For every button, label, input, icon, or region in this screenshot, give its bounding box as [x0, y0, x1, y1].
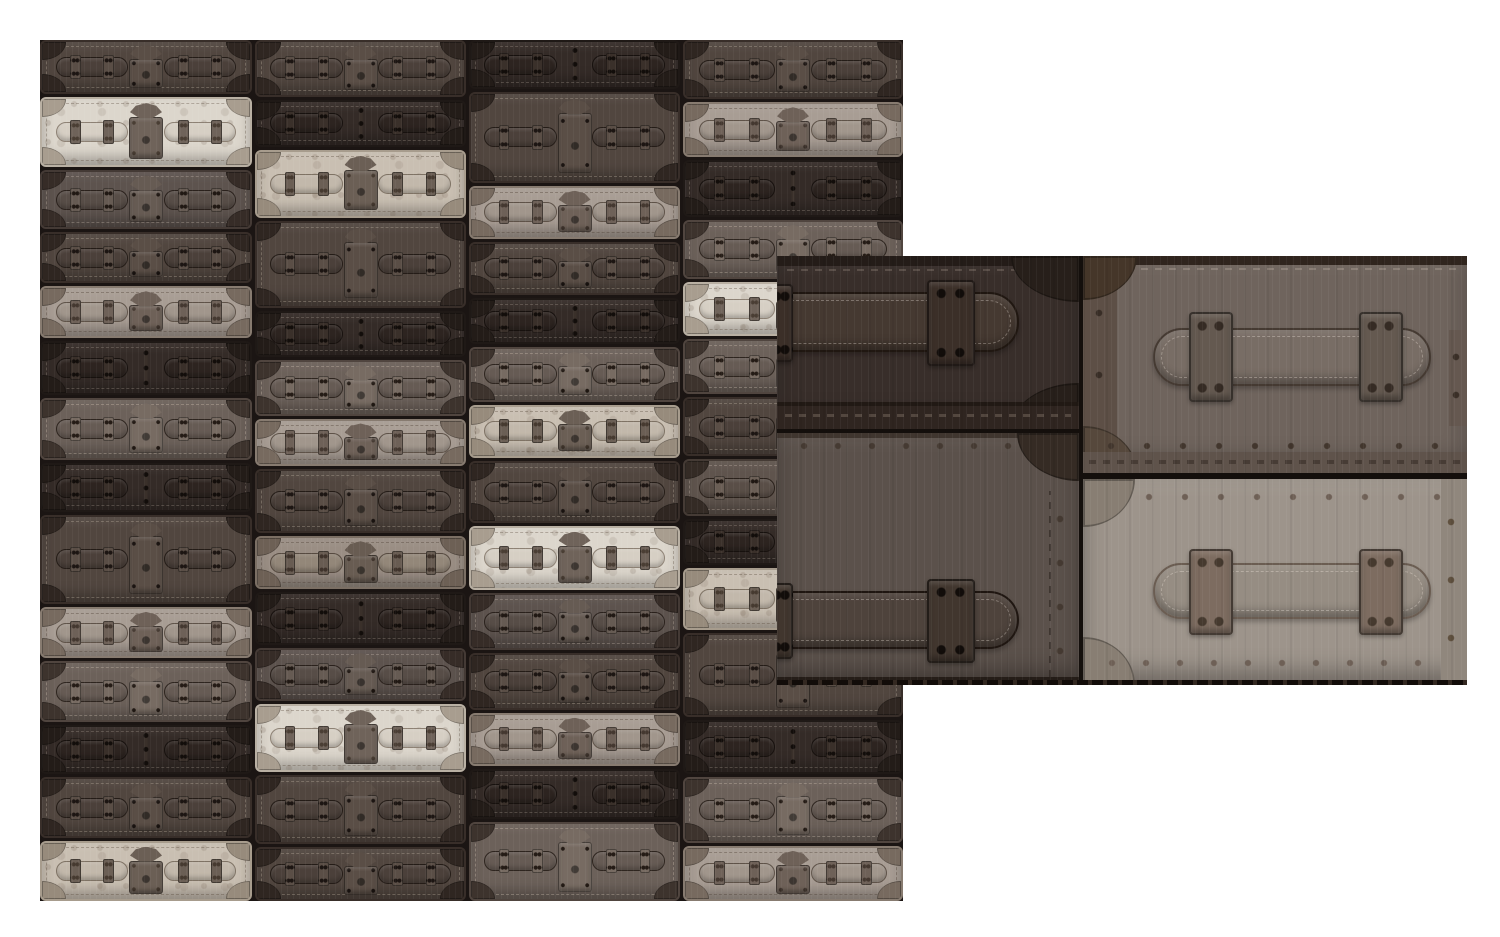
strap-keeper — [749, 237, 760, 261]
strap-keeper — [499, 362, 510, 386]
lock-finial — [777, 851, 809, 866]
strap-keeper — [499, 125, 510, 149]
handle-icon — [378, 58, 450, 78]
handle-icon — [484, 548, 556, 568]
handle-icon — [270, 58, 342, 78]
corner-cap — [257, 152, 281, 170]
strap-keeper — [532, 480, 543, 504]
handle-icon — [56, 57, 129, 77]
strap-keeper — [392, 56, 403, 80]
strap-keeper — [426, 252, 437, 276]
handle-icon — [484, 202, 556, 222]
handle-icon — [270, 254, 342, 274]
strap-keeper — [211, 356, 222, 380]
corner-cap — [440, 513, 464, 531]
strap-keeper — [861, 58, 872, 82]
strap-keeper — [426, 172, 437, 196]
corner-cap — [42, 400, 66, 418]
trunk-bottom-left — [777, 433, 1079, 685]
strap-keeper — [606, 480, 617, 504]
corner-cap — [471, 528, 495, 546]
lock-plate — [344, 866, 378, 894]
strap-keeper — [426, 111, 437, 135]
corner-cap — [257, 752, 281, 770]
handle-icon — [484, 851, 556, 871]
suitcase — [40, 398, 252, 461]
strap-keeper — [714, 587, 725, 611]
strap-keeper — [532, 362, 543, 386]
handle-icon — [270, 800, 342, 820]
corner-cap — [685, 635, 709, 653]
lock-plate — [129, 417, 163, 453]
suitcase — [40, 515, 252, 604]
strap-keeper — [749, 663, 760, 687]
strap-keeper — [70, 476, 81, 500]
strap-keeper — [499, 669, 510, 693]
handle-icon — [484, 127, 556, 147]
strap-keeper — [714, 355, 725, 379]
handle-icon — [378, 800, 450, 820]
handle-icon — [484, 612, 556, 632]
strap-keeper — [714, 118, 725, 142]
handle-icon — [592, 784, 664, 804]
lock-finial — [559, 352, 591, 367]
handle-icon — [270, 324, 342, 344]
corner-cap — [42, 517, 66, 535]
strap-keeper — [318, 376, 329, 400]
strap-keeper — [640, 362, 651, 386]
suitcase — [683, 846, 903, 901]
handle-icon — [699, 737, 775, 757]
corner-cap — [685, 436, 709, 454]
strap-keeper — [70, 680, 81, 704]
strap-keeper — [318, 862, 329, 886]
handle-icon — [484, 364, 556, 384]
handle-icon — [56, 861, 129, 881]
corner-cap — [257, 288, 281, 306]
strap-keeper — [70, 859, 81, 883]
suitcase — [469, 40, 680, 89]
corner-cap — [1017, 433, 1079, 481]
leather-band — [1083, 256, 1467, 265]
corner-cap — [685, 222, 709, 240]
strap-keeper — [392, 798, 403, 822]
suitcase — [40, 607, 252, 658]
strap-keeper — [640, 849, 651, 873]
lock-icon — [552, 466, 598, 516]
handle-icon — [164, 190, 237, 210]
handle-icon — [592, 729, 664, 749]
lock-finial — [345, 228, 377, 243]
strap-keeper — [70, 55, 81, 79]
strap-keeper — [318, 489, 329, 513]
strap-keeper — [392, 862, 403, 886]
strap-keeper — [211, 120, 222, 144]
corner-cap — [226, 818, 250, 836]
suitcase — [469, 242, 680, 295]
strap-keeper — [318, 111, 329, 135]
center-strap-icon — [356, 319, 365, 350]
suitcase — [255, 40, 466, 97]
strap-keeper — [426, 489, 437, 513]
lock-finial — [559, 191, 591, 206]
lock-finial — [345, 45, 377, 60]
lock-finial — [130, 667, 162, 682]
strap-keeper — [211, 621, 222, 645]
strap-keeper — [178, 547, 189, 571]
handle-icon — [56, 419, 129, 439]
strap-keeper — [318, 726, 329, 750]
strap-keeper — [178, 188, 189, 212]
strap-keeper — [606, 669, 617, 693]
stitch-line — [785, 414, 1071, 417]
strap-keeper — [714, 663, 725, 687]
lock-icon — [338, 653, 384, 695]
strap-keeper — [640, 610, 651, 634]
suitcase — [255, 775, 466, 844]
corner-cap — [440, 706, 464, 724]
handle-icon — [56, 478, 129, 498]
corner-cap — [440, 396, 464, 414]
lock-plate — [776, 865, 810, 895]
lock-plate — [129, 251, 163, 277]
strap-keeper — [211, 417, 222, 441]
lock-plate — [558, 205, 592, 233]
handle-icon — [699, 589, 775, 609]
handle-icon — [56, 190, 129, 210]
strap-keeper — [285, 798, 296, 822]
handle-icon — [484, 311, 556, 331]
lock-icon — [552, 658, 598, 703]
strap-keeper — [318, 430, 329, 454]
corner-cap — [654, 528, 678, 546]
corner-cap — [685, 316, 709, 334]
strap-keeper — [285, 111, 296, 135]
handle-icon — [56, 623, 129, 643]
handle-icon — [378, 553, 450, 573]
strap-keeper — [318, 551, 329, 575]
strap-keeper — [499, 419, 510, 443]
strap-keeper — [178, 120, 189, 144]
strap-keeper — [1189, 549, 1233, 635]
lock-plate — [344, 379, 378, 409]
lock-finial — [559, 598, 591, 613]
strap-keeper — [1359, 549, 1403, 635]
strap-keeper — [426, 798, 437, 822]
strap-keeper — [532, 546, 543, 570]
lock-icon — [123, 403, 169, 453]
corner-cap — [42, 172, 66, 190]
handle-icon — [592, 202, 664, 222]
lock-plate — [344, 242, 378, 298]
strap-keeper — [318, 172, 329, 196]
corner-cap — [685, 779, 709, 797]
handle-icon — [699, 60, 775, 80]
lock-icon — [123, 45, 169, 88]
strap-keeper — [499, 256, 510, 280]
strap-keeper — [178, 476, 189, 500]
corner-cap — [685, 570, 709, 588]
suitcase — [255, 311, 466, 357]
strap-keeper — [826, 118, 837, 142]
strap-keeper — [70, 120, 81, 144]
corner-cap — [440, 198, 464, 216]
center-strap-icon — [789, 729, 798, 764]
lock-icon — [338, 45, 384, 90]
corner-cap — [257, 223, 281, 241]
corner-cap — [685, 823, 709, 841]
corner-cap — [226, 663, 250, 681]
corner-cap — [471, 94, 495, 112]
pattern-column — [469, 40, 680, 901]
strap-keeper — [426, 726, 437, 750]
strap-keeper — [211, 55, 222, 79]
handle-icon — [592, 55, 664, 75]
strap-keeper — [211, 859, 222, 883]
lock-icon — [552, 828, 598, 892]
lock-plate — [558, 366, 592, 395]
handle-icon — [699, 417, 775, 437]
lock-plate — [558, 546, 592, 583]
strap-keeper — [426, 430, 437, 454]
suitcase — [40, 97, 252, 167]
handle-icon — [270, 728, 342, 748]
corner-cap — [877, 162, 901, 180]
handle-icon — [592, 311, 664, 331]
lock-plate — [129, 861, 163, 894]
strap-keeper — [178, 796, 189, 820]
strap-keeper — [861, 176, 872, 200]
rivet-row — [1095, 659, 1441, 667]
corner-cap — [257, 77, 281, 95]
lock-icon — [338, 365, 384, 409]
corner-cap — [685, 162, 709, 180]
lock-icon — [338, 475, 384, 526]
lock-finial — [345, 365, 377, 380]
strap-keeper — [178, 55, 189, 79]
lock-icon — [770, 851, 816, 895]
corner-cap — [471, 382, 495, 400]
lock-finial — [130, 612, 162, 627]
strap-keeper — [532, 53, 543, 77]
strap-keeper — [392, 726, 403, 750]
lock-icon — [770, 107, 816, 151]
strap-keeper — [318, 607, 329, 631]
corner-cap — [42, 584, 66, 602]
strap-keeper — [606, 727, 617, 751]
lock-icon — [552, 191, 598, 233]
lock-icon — [123, 103, 169, 159]
handle-icon — [164, 419, 237, 439]
handle-strap-icon — [777, 292, 1019, 352]
handle-icon — [378, 113, 450, 133]
handle-icon — [270, 113, 342, 133]
strap-keeper — [749, 297, 760, 321]
lock-finial — [345, 541, 377, 556]
lock-icon — [338, 852, 384, 894]
suitcase — [469, 461, 680, 523]
suitcase — [469, 405, 680, 458]
handle-icon — [592, 548, 664, 568]
lock-plate — [558, 424, 592, 452]
strap-keeper — [640, 546, 651, 570]
corner-cap — [226, 881, 250, 899]
handle-icon — [484, 55, 556, 75]
strap-keeper — [499, 727, 510, 751]
corner-cap — [226, 702, 250, 720]
handle-icon — [592, 421, 664, 441]
suitcase — [40, 40, 252, 94]
strap-keeper — [640, 480, 651, 504]
lock-finial — [130, 45, 162, 60]
strap-keeper — [927, 280, 975, 366]
handle-icon — [811, 863, 887, 883]
handle-icon — [56, 302, 129, 322]
lock-finial — [345, 156, 377, 171]
strap-keeper — [211, 246, 222, 270]
lock-icon — [770, 45, 816, 92]
strap-keeper — [392, 551, 403, 575]
lock-icon — [552, 352, 598, 395]
strap-keeper — [606, 546, 617, 570]
handle-icon — [592, 258, 664, 278]
strap-keeper — [211, 738, 222, 762]
stitch-line — [1049, 491, 1051, 677]
suitcase — [469, 92, 680, 183]
strap-keeper — [1359, 312, 1403, 402]
handle-icon — [811, 120, 887, 140]
strap-keeper — [861, 798, 872, 822]
center-strap-icon — [356, 108, 365, 139]
handle-icon — [592, 127, 664, 147]
strap-keeper — [640, 200, 651, 224]
strap-keeper — [532, 727, 543, 751]
strap-keeper — [426, 56, 437, 80]
strap-keeper — [826, 58, 837, 82]
strap-keeper — [532, 200, 543, 224]
suitcase — [683, 40, 903, 99]
strap-keeper — [285, 172, 296, 196]
suitcase — [255, 536, 466, 589]
handle-icon — [699, 800, 775, 820]
strap-keeper — [499, 546, 510, 570]
lock-icon — [123, 237, 169, 277]
handle-icon — [378, 491, 450, 511]
lock-finial — [559, 828, 591, 843]
strap-keeper — [103, 476, 114, 500]
handle-icon — [164, 861, 237, 881]
strap-keeper — [499, 200, 510, 224]
handle-icon — [699, 239, 775, 259]
strap-keeper — [499, 610, 510, 634]
strap-keeper — [826, 861, 837, 885]
lock-icon — [123, 847, 169, 894]
corner-cap — [42, 843, 66, 861]
corner-cap — [226, 147, 250, 165]
strap-keeper — [103, 859, 114, 883]
corner-cap — [257, 198, 281, 216]
corner-cap — [471, 595, 495, 613]
suitcase — [469, 526, 680, 590]
corner-cap — [440, 824, 464, 842]
lock-icon — [123, 783, 169, 831]
stitch-line — [1127, 268, 1459, 270]
strap-keeper — [606, 53, 617, 77]
center-strap-icon — [570, 48, 579, 81]
strap-keeper — [426, 607, 437, 631]
strap-keeper — [178, 621, 189, 645]
handle-icon — [811, 60, 887, 80]
corner-cap — [440, 288, 464, 306]
handle-icon — [270, 553, 342, 573]
corner-cap — [471, 824, 495, 842]
strap-keeper — [714, 176, 725, 200]
strap-keeper — [749, 735, 760, 759]
strap-keeper — [103, 417, 114, 441]
lock-icon — [338, 710, 384, 764]
leather-band — [777, 406, 1079, 429]
corner-cap — [877, 823, 901, 841]
handle-icon — [699, 863, 775, 883]
corner-cap — [42, 99, 66, 117]
lock-plate — [558, 261, 592, 289]
strap-keeper — [532, 849, 543, 873]
corner-cap — [226, 400, 250, 418]
lock-icon — [123, 667, 169, 715]
handle-icon — [484, 482, 556, 502]
handle-icon — [164, 623, 237, 643]
lock-plate — [344, 437, 378, 460]
lock-icon — [552, 598, 598, 643]
strap-keeper — [606, 782, 617, 806]
strap-keeper — [318, 798, 329, 822]
lock-finial — [345, 852, 377, 867]
lock-plate — [129, 190, 163, 223]
corner-cap — [257, 42, 281, 60]
trunk-bottom-right — [1083, 479, 1467, 685]
strap-keeper — [749, 58, 760, 82]
handle-icon — [378, 665, 450, 685]
handle-icon — [164, 57, 237, 77]
strap-keeper — [285, 322, 296, 346]
corner-cap — [226, 209, 250, 227]
strap-keeper — [103, 120, 114, 144]
handle-icon — [164, 798, 237, 818]
strap-keeper — [532, 256, 543, 280]
leather-band — [777, 677, 1079, 685]
lock-finial — [345, 710, 377, 725]
lock-icon — [338, 156, 384, 210]
strap-keeper — [70, 246, 81, 270]
lock-icon — [123, 176, 169, 223]
strap-keeper — [749, 587, 760, 611]
suitcase — [40, 841, 252, 901]
strap-keeper — [103, 55, 114, 79]
strap-keeper — [285, 663, 296, 687]
strap-keeper — [714, 861, 725, 885]
strap-keeper — [532, 419, 543, 443]
strap-keeper — [927, 579, 975, 663]
lock-icon — [552, 410, 598, 452]
corner-cap — [877, 222, 901, 240]
strap-keeper — [70, 621, 81, 645]
lock-icon — [770, 782, 816, 835]
lock-icon — [552, 99, 598, 173]
strap-keeper — [714, 735, 725, 759]
strap-keeper — [392, 430, 403, 454]
corner-cap — [654, 824, 678, 842]
corner-cap — [471, 655, 495, 673]
